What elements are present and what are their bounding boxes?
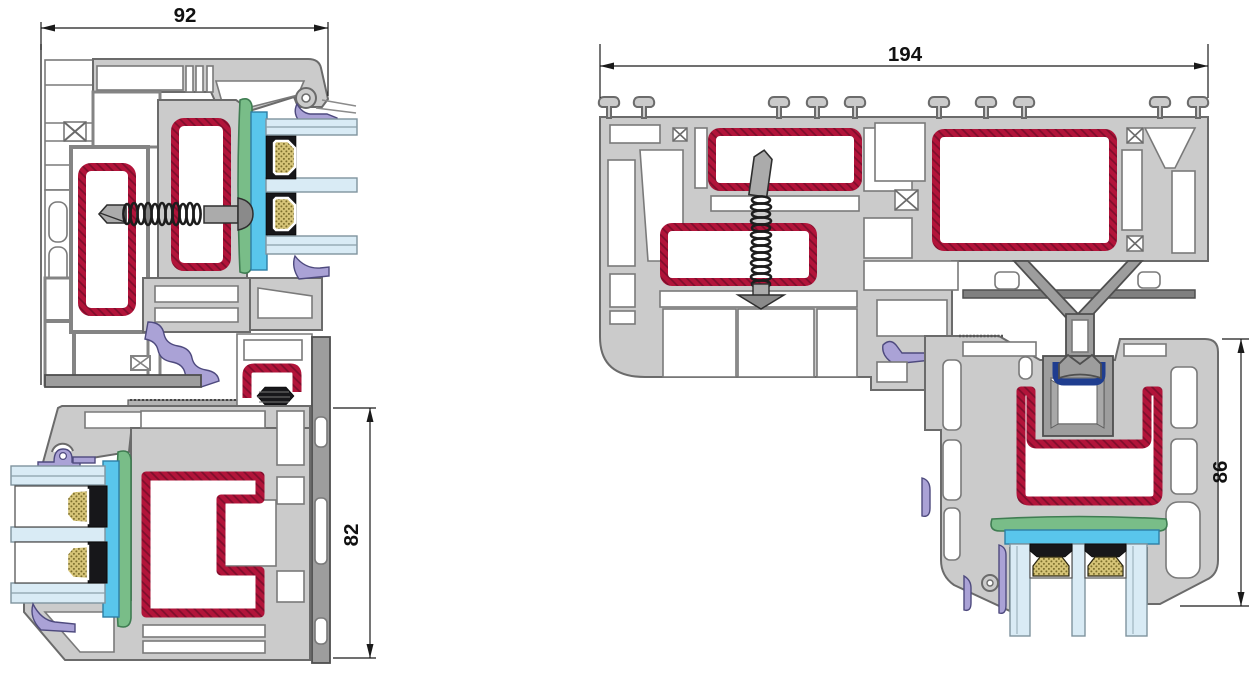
svg-text:194: 194 (888, 43, 923, 66)
svg-text:92: 92 (174, 4, 197, 27)
svg-text:86: 86 (1209, 461, 1232, 484)
svg-text:82: 82 (340, 524, 363, 547)
